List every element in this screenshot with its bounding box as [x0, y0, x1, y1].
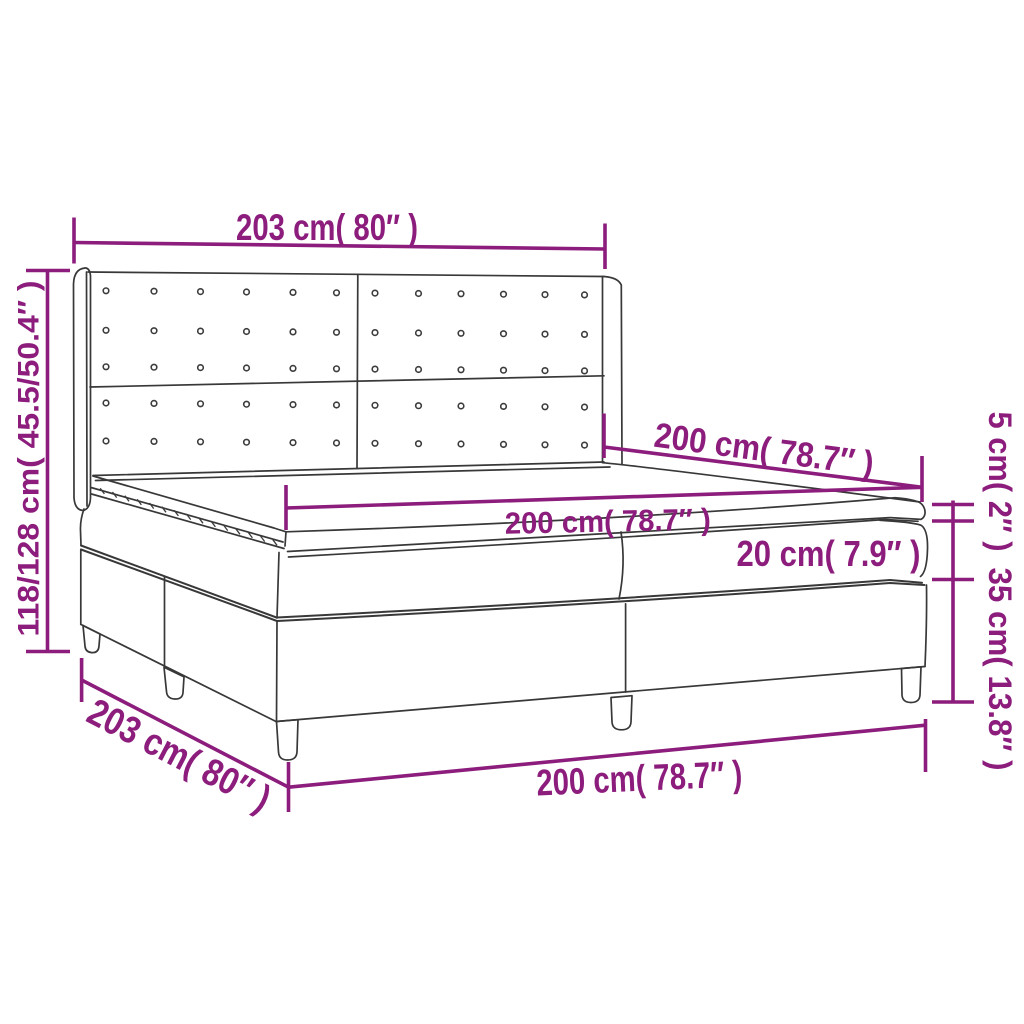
- svg-text:35 cm( 13.8″ ): 35 cm( 13.8″ ): [982, 568, 1018, 771]
- svg-text:118/128 cm( 45.5/50.4″ ): 118/128 cm( 45.5/50.4″ ): [13, 281, 46, 637]
- svg-text:5 cm( 2″ ): 5 cm( 2″ ): [982, 412, 1018, 552]
- svg-text:20 cm( 7.9″ ): 20 cm( 7.9″ ): [737, 533, 921, 574]
- svg-text:200 cm( 78.7″ ): 200 cm( 78.7″ ): [504, 502, 711, 540]
- svg-text:203 cm( 80″ ): 203 cm( 80″ ): [236, 207, 418, 248]
